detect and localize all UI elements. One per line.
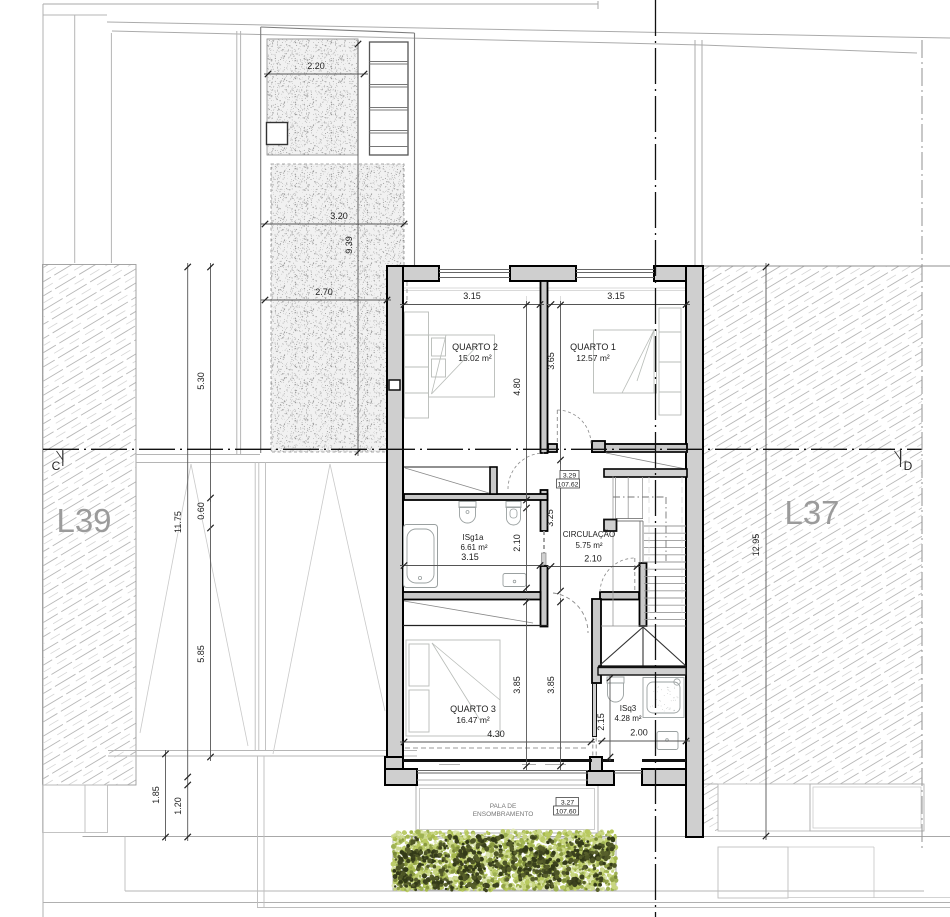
svg-text:5.30: 5.30: [196, 372, 206, 390]
svg-text:2.20: 2.20: [307, 61, 325, 71]
svg-text:11.75: 11.75: [173, 511, 183, 533]
svg-text:4.28 m²: 4.28 m²: [614, 714, 641, 723]
svg-text:107.62: 107.62: [558, 482, 579, 489]
svg-text:3.15: 3.15: [607, 291, 625, 301]
svg-text:3.85: 3.85: [512, 676, 522, 694]
svg-text:L37: L37: [784, 494, 839, 531]
svg-text:2.70: 2.70: [315, 287, 333, 297]
svg-text:1.85: 1.85: [151, 786, 161, 804]
svg-text:3.25: 3.25: [545, 509, 555, 527]
svg-text:L39: L39: [56, 502, 111, 539]
svg-text:ISq3: ISq3: [620, 704, 637, 713]
svg-text:3.85: 3.85: [546, 676, 556, 694]
svg-text:ENSOMBRAMENTO: ENSOMBRAMENTO: [473, 811, 534, 818]
svg-text:3.15: 3.15: [463, 291, 481, 301]
svg-text:12.95: 12.95: [751, 534, 761, 557]
svg-text:2.15: 2.15: [596, 713, 606, 731]
svg-text:3.27: 3.27: [561, 800, 574, 807]
svg-text:4.30: 4.30: [487, 729, 505, 739]
svg-text:16.47 m²: 16.47 m²: [456, 715, 490, 725]
svg-text:5.85: 5.85: [196, 645, 206, 663]
svg-text:107.60: 107.60: [556, 809, 577, 816]
svg-text:4.80: 4.80: [512, 378, 522, 396]
svg-text:12.57 m²: 12.57 m²: [576, 353, 610, 363]
svg-text:2.10: 2.10: [584, 554, 602, 564]
svg-text:QUARTO 2: QUARTO 2: [452, 342, 498, 352]
svg-text:PALA DE: PALA DE: [490, 803, 517, 810]
svg-text:3.29: 3.29: [563, 473, 576, 480]
svg-text:2.10: 2.10: [512, 534, 522, 552]
svg-text:QUARTO 1: QUARTO 1: [570, 342, 616, 352]
svg-text:D: D: [904, 459, 913, 473]
svg-text:15.02 m²: 15.02 m²: [458, 353, 492, 363]
svg-text:QUARTO 3: QUARTO 3: [450, 704, 496, 714]
svg-text:CIRCULAÇÃO: CIRCULAÇÃO: [563, 530, 615, 539]
svg-text:ISg1a: ISg1a: [463, 533, 484, 542]
svg-text:3.15: 3.15: [461, 552, 479, 562]
svg-text:3.65: 3.65: [546, 352, 556, 370]
svg-text:C: C: [52, 459, 61, 473]
svg-text:3.20: 3.20: [330, 211, 348, 221]
svg-text:0.60: 0.60: [196, 502, 206, 520]
svg-text:1.20: 1.20: [173, 797, 183, 815]
svg-text:5.75 m²: 5.75 m²: [575, 541, 602, 550]
svg-text:2.00: 2.00: [630, 728, 648, 738]
svg-text:6.61 m²: 6.61 m²: [460, 543, 487, 552]
svg-text:9.39: 9.39: [344, 236, 354, 254]
